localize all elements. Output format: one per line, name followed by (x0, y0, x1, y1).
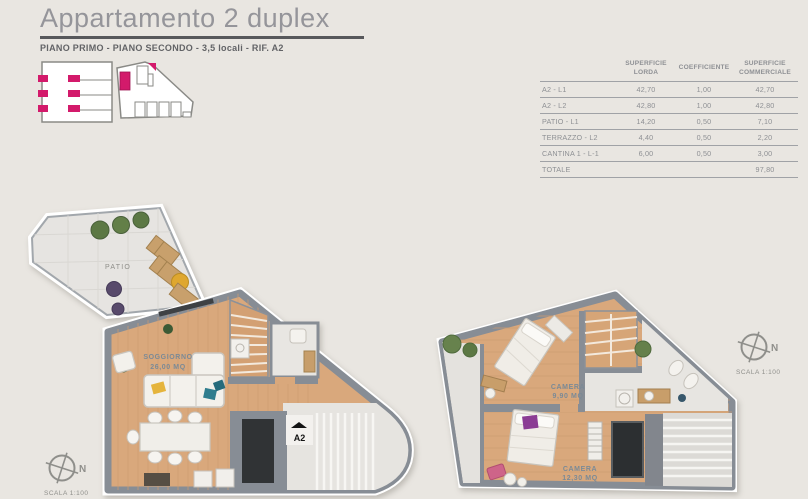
basin (645, 392, 654, 401)
floor-key-plan (117, 62, 193, 118)
ladder-closet (588, 422, 602, 460)
entrance-label: A2 (294, 433, 306, 443)
shower (612, 422, 643, 477)
row-lorda: 6,00 (616, 149, 676, 158)
living-room-label: SOGGIORNO (143, 354, 192, 361)
dining-table (140, 423, 210, 451)
entrance-marker: A2 (286, 415, 313, 445)
bath-plant (678, 394, 686, 402)
pillow-purple (522, 415, 538, 430)
patio-label: PATIO (105, 264, 131, 271)
living-unit: A2 SOGGIORNO 26,00 MQ (108, 288, 413, 493)
compass-left: N SCALA 1:100 (42, 450, 132, 498)
floor-plan-second-floor: CAMERA 9,90 MQ CAMERA 12,30 MQ (430, 286, 742, 499)
page-subtitle: PIANO PRIMO - PIANO SECONDO - 3,5 locali… (40, 43, 284, 53)
bedroom1-label: CAMERA (551, 384, 585, 391)
table-row: TERRAZZO - L2 4,40 0,50 2,20 (540, 129, 798, 145)
locator-diagrams (34, 58, 214, 128)
row-commerciale: 42,70 (732, 85, 798, 94)
row-coefficiente: 0,50 (676, 149, 732, 158)
table-row: A2 - L1 42,70 1,00 42,70 (540, 81, 798, 97)
north-label: N (79, 464, 86, 475)
row-label: PATIO - L1 (540, 117, 616, 126)
sink (290, 329, 306, 343)
table-row: A2 - L2 42,80 1,00 42,80 (540, 97, 798, 113)
compass-right: N SCALA 1:100 (734, 329, 808, 377)
cabinet-box-2 (216, 469, 234, 487)
row-coefficiente: 0,50 (676, 133, 732, 142)
row-label: A2 - L1 (540, 85, 616, 94)
row-coefficiente: 0,50 (676, 117, 732, 126)
row-lorda: 42,70 (616, 85, 676, 94)
north-label: N (771, 343, 778, 354)
row-commerciale: 3,00 (732, 149, 798, 158)
corridor-wall (579, 370, 585, 412)
unit-marker (120, 72, 130, 90)
title-rule (40, 36, 364, 39)
row-commerciale: 42,80 (732, 101, 798, 110)
double-bed (507, 409, 559, 466)
scale-label: SCALA 1:100 (44, 490, 89, 497)
table-total-row: TOTALE 97,80 (540, 161, 798, 178)
row-commerciale: 7,10 (732, 117, 798, 126)
table-row: PATIO - L1 14,20 0,50 7,10 (540, 113, 798, 129)
tv-unit (144, 473, 170, 486)
bedroom2-label: CAMERA (563, 466, 597, 473)
patio-area: PATIO (28, 203, 208, 318)
stair-hall-wall (579, 311, 585, 374)
row-lorda: 4,40 (616, 133, 676, 142)
row-label: A2 - L2 (540, 101, 616, 110)
row-coefficiente: 1,00 (676, 85, 732, 94)
plan-sheet: Appartamento 2 duplex PIANO PRIMO - PIAN… (0, 0, 808, 499)
scale-label: SCALA 1:100 (736, 369, 781, 376)
total-label: TOTALE (540, 165, 616, 174)
door-gap (560, 404, 578, 412)
row-label: TERRAZZO - L2 (540, 133, 616, 142)
col-header-superficie-commerciale: SUPERFICIE COMMERCIALE (732, 60, 798, 77)
living-room-area: 26,00 MQ (150, 364, 186, 371)
col-header-coefficiente: COEFFICIENTE (676, 64, 732, 73)
row-lorda: 14,20 (616, 117, 676, 126)
building-section-key (38, 62, 112, 122)
entry-door-opening (242, 419, 274, 483)
row-lorda: 42,80 (616, 101, 676, 110)
interior-wall (228, 377, 318, 384)
pouf-small (518, 478, 527, 487)
bathroom (271, 323, 318, 377)
table-header-row: SUPERFICIE LORDA COEFFICIENTE SUPERFICIE… (540, 58, 798, 81)
bedroom-unit: CAMERA 9,90 MQ CAMERA 12,30 MQ (430, 295, 742, 487)
row-commerciale: 2,20 (732, 133, 798, 142)
table-row: CANTINA 1 - L-1 6,00 0,50 3,00 (540, 145, 798, 161)
cabinet-box (194, 471, 212, 487)
bath-cabinet (304, 351, 315, 372)
interior-stairs (585, 311, 637, 368)
row-coefficiente: 1,00 (676, 101, 732, 110)
total-value: 97,80 (732, 165, 798, 174)
page-title: Appartamento 2 duplex (40, 3, 330, 34)
stair-wall (645, 414, 663, 487)
pouf (504, 473, 516, 485)
bedroom1-area: 9,90 MQ (552, 393, 583, 400)
door-gap (275, 377, 295, 384)
plant-pot (163, 324, 173, 334)
area-table: SUPERFICIE LORDA COEFFICIENTE SUPERFICIE… (540, 58, 798, 178)
col-header-superficie-lorda: SUPERFICIE LORDA (616, 60, 676, 77)
bedroom2-area: 12,30 MQ (562, 475, 598, 482)
row-label: CANTINA 1 - L-1 (540, 149, 616, 158)
